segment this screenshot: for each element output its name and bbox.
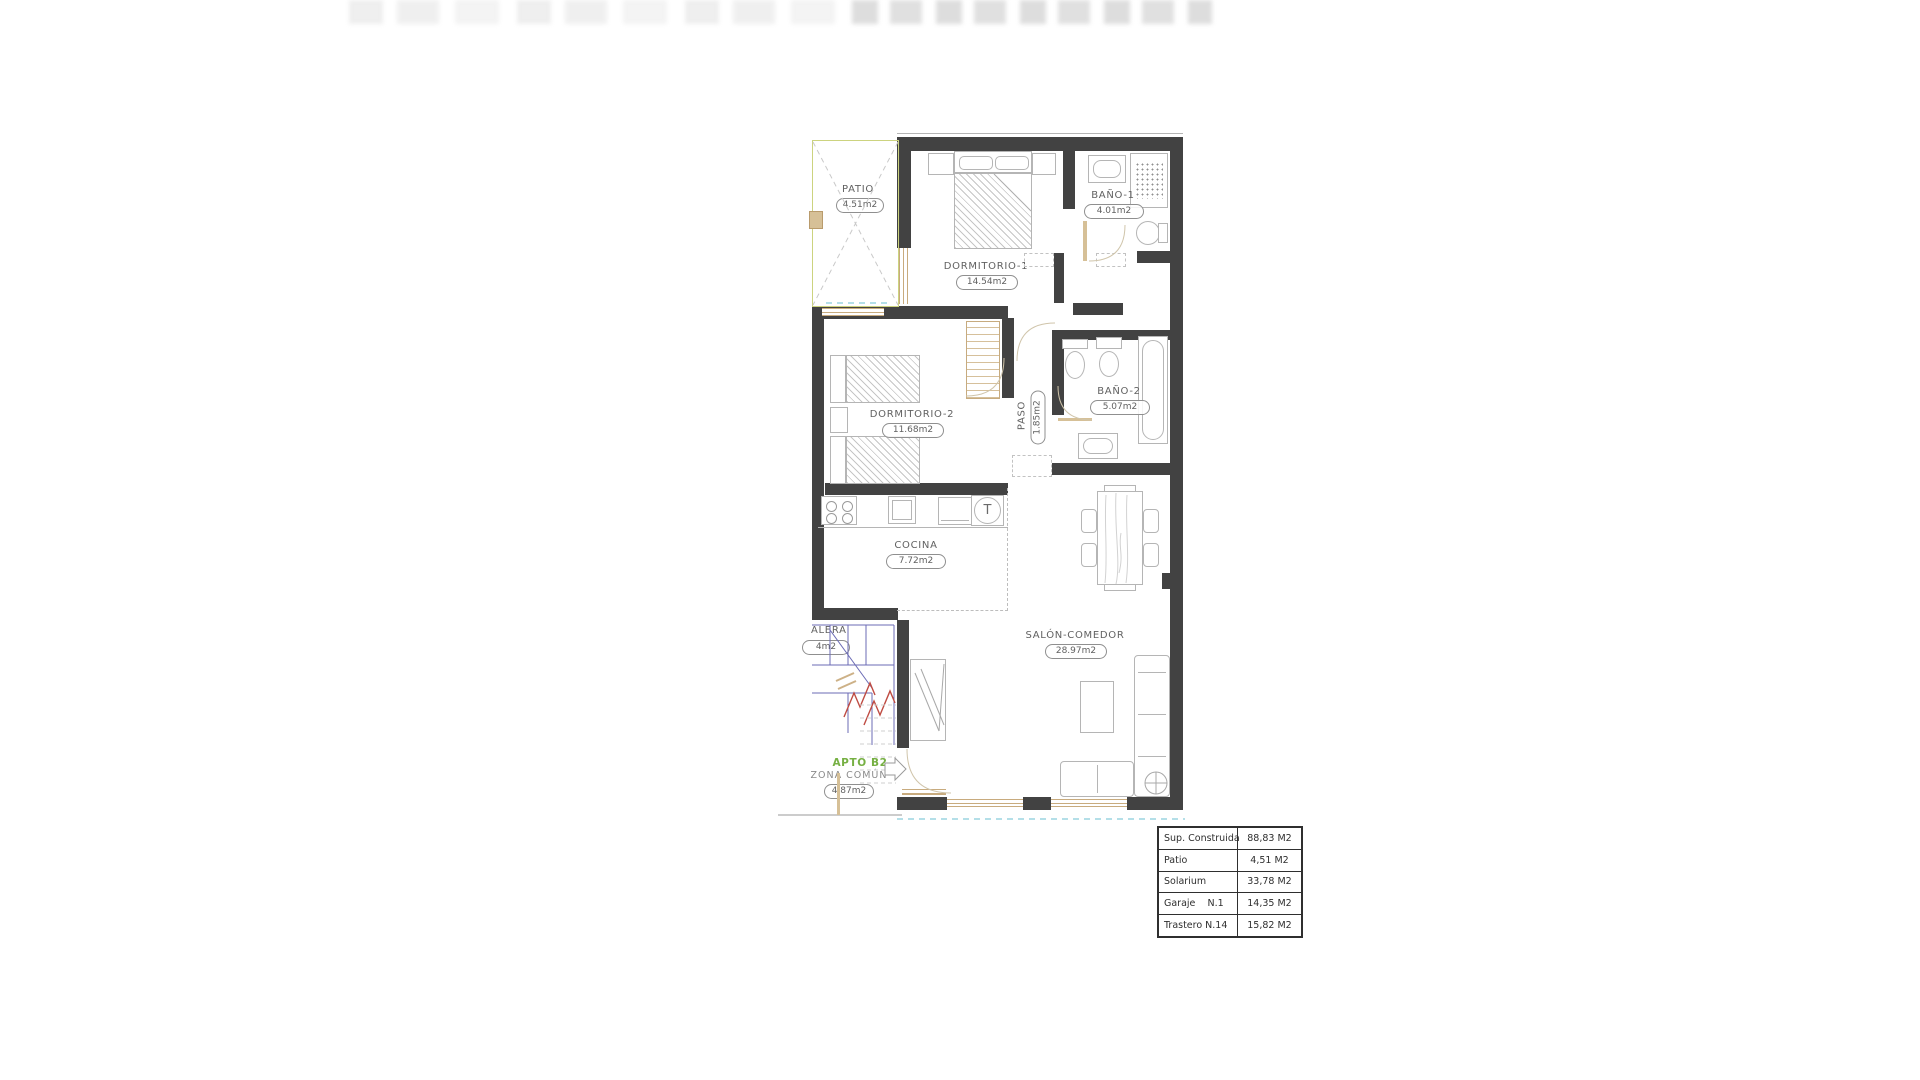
sink	[1078, 433, 1118, 459]
room-area-patio: 4.51m2	[836, 198, 884, 213]
toilet-tank	[1062, 339, 1088, 349]
tv-unit	[910, 659, 946, 741]
sink-basin	[1093, 160, 1121, 178]
room-area-bano2: 5.07m2	[1090, 400, 1150, 415]
wall-segment	[1127, 797, 1183, 810]
sink-basin	[1083, 438, 1113, 454]
wall-segment	[897, 137, 911, 248]
coffee-table	[1080, 681, 1114, 733]
sink	[1088, 155, 1126, 183]
wall-segment	[1170, 137, 1183, 810]
single-bed	[846, 436, 920, 484]
door-arc-entry	[907, 749, 951, 793]
room-label-paso: PASO	[1017, 386, 1028, 446]
table-cell-name: Trastero N.14	[1159, 915, 1238, 936]
table-row: Patio 4,51 M2	[1159, 849, 1301, 871]
window	[947, 799, 1023, 807]
table-cell-value: 33,78 M2	[1238, 872, 1301, 893]
door-leaf	[1058, 418, 1092, 421]
dining-chair	[1081, 509, 1097, 533]
nightstand	[928, 153, 954, 175]
bed-headboard	[830, 436, 846, 484]
room-label-zona-comun: ZONA COMÚN	[808, 770, 890, 781]
wall-segment	[825, 483, 1008, 495]
wall-segment	[1023, 797, 1051, 810]
wall-segment	[897, 797, 947, 810]
burner	[842, 513, 853, 524]
post	[837, 773, 840, 815]
wall-stub	[1162, 573, 1170, 589]
room-area-salon: 28.97m2	[1045, 644, 1107, 659]
stair-ticks	[836, 673, 856, 689]
appliance-line	[941, 520, 969, 521]
dining-table	[1097, 491, 1143, 585]
dining-chair	[1104, 584, 1136, 591]
bed-headboard	[954, 151, 1032, 173]
room-label-dormitorio2: DORMITORIO-2	[852, 409, 972, 420]
nightstand	[1032, 153, 1056, 175]
table-cell-name: Sup. Construida	[1159, 828, 1238, 849]
table-cell-name: Patio	[1159, 850, 1238, 871]
room-label-patio: PATIO	[818, 184, 898, 195]
room-label-cocina: COCINA	[856, 540, 976, 551]
room-area-paso: 1.85m2	[1031, 391, 1046, 445]
room-area-escalera: 4m2	[802, 640, 850, 655]
threshold	[1012, 455, 1052, 477]
dining-chair	[1143, 543, 1159, 567]
wall-segment	[897, 137, 1183, 151]
table-cell-name: Solarium	[1159, 872, 1238, 893]
bidet	[1099, 351, 1119, 377]
room-label-bano2: BAÑO-2	[1069, 386, 1169, 397]
appliance	[938, 497, 972, 525]
open-boundary	[897, 610, 1008, 611]
sofa-long	[1134, 655, 1170, 797]
toilet	[1136, 221, 1160, 245]
room-label-escalera: ALERA	[811, 625, 881, 636]
kitchen-sink	[888, 496, 916, 524]
entry-threshold	[902, 789, 946, 795]
table-row: Trastero N.14 15,82 M2	[1159, 914, 1301, 936]
pillow	[995, 156, 1029, 170]
burner	[826, 501, 837, 512]
table-cell-name: Garaje N.1	[1159, 893, 1238, 914]
kitchen-sink-basin	[892, 500, 912, 520]
table-cell-value: 88,83 M2	[1238, 828, 1301, 849]
wall-segment	[1073, 303, 1123, 315]
floor-plan: PATIO 4.51m2 DORMITORIO-1 14.54m2 BAÑO-1…	[808, 133, 1188, 823]
burner	[826, 513, 837, 524]
wall-segment	[812, 306, 824, 608]
table-cell-value: 4,51 M2	[1238, 850, 1301, 871]
surface-summary-table: Sup. Construida 88,83 M2 Patio 4,51 M2 S…	[1157, 826, 1303, 938]
wall-segment	[1052, 463, 1170, 475]
window	[822, 308, 884, 316]
window	[899, 248, 908, 304]
table-cell-value: 15,82 M2	[1238, 915, 1301, 936]
door-leaf	[1083, 221, 1087, 261]
wall-segment	[1137, 251, 1170, 263]
stair-arrows	[844, 683, 895, 725]
apartment-tag: APTO B2	[820, 757, 900, 769]
open-boundary	[1007, 488, 1008, 611]
wall-segment	[897, 620, 909, 748]
sofa-seam	[1097, 765, 1098, 793]
table-cell-value: 14,35 M2	[1238, 893, 1301, 914]
boiler-symbol: T	[974, 497, 1001, 524]
threshold	[1024, 253, 1054, 267]
bidet-back	[1096, 337, 1122, 349]
room-label-bano1: BAÑO-1	[1063, 190, 1163, 201]
dining-chair	[1143, 509, 1159, 533]
window	[1051, 799, 1127, 807]
room-label-salon: SALÓN-COMEDOR	[1015, 630, 1135, 641]
stove	[821, 496, 857, 525]
wall-segment	[1002, 318, 1014, 398]
floorplan-page: PATIO 4.51m2 DORMITORIO-1 14.54m2 BAÑO-1…	[0, 0, 1920, 1080]
sofa-seam	[1138, 672, 1166, 673]
room-area-dormitorio1: 14.54m2	[956, 275, 1018, 290]
room-area-bano1: 4.01m2	[1084, 204, 1144, 219]
sofa-seam	[1138, 714, 1166, 715]
table-row: Garaje N.1 14,35 M2	[1159, 892, 1301, 914]
dining-chair	[1081, 543, 1097, 567]
counter-edge	[818, 527, 1008, 528]
toilet-tank	[1158, 223, 1168, 243]
letterhead-artifact	[349, 0, 849, 24]
single-bed	[846, 355, 920, 403]
table-row: Sup. Construida 88,83 M2	[1159, 828, 1301, 849]
pillow	[959, 156, 993, 170]
wardrobe	[966, 321, 1000, 399]
letterhead-artifact	[852, 0, 1212, 24]
table-row: Solarium 33,78 M2	[1159, 871, 1301, 893]
toilet	[1065, 351, 1085, 379]
door-arc-dormitorio1	[1017, 323, 1055, 361]
patio-fixture	[809, 211, 823, 229]
nightstand	[830, 407, 848, 433]
wall-segment	[812, 608, 898, 620]
sofa-seam	[1138, 756, 1166, 757]
threshold	[1096, 253, 1126, 267]
room-area-cocina: 7.72m2	[886, 554, 946, 569]
wall-segment	[897, 133, 1183, 134]
burner	[842, 501, 853, 512]
wall-segment	[1054, 253, 1064, 303]
bed-headboard	[830, 355, 846, 403]
patio-area	[812, 140, 899, 307]
room-area-dormitorio2: 11.68m2	[882, 423, 944, 438]
room-area-zona-comun: 4.87m2	[824, 784, 874, 799]
double-bed	[954, 173, 1032, 249]
sofa-short	[1060, 761, 1134, 797]
